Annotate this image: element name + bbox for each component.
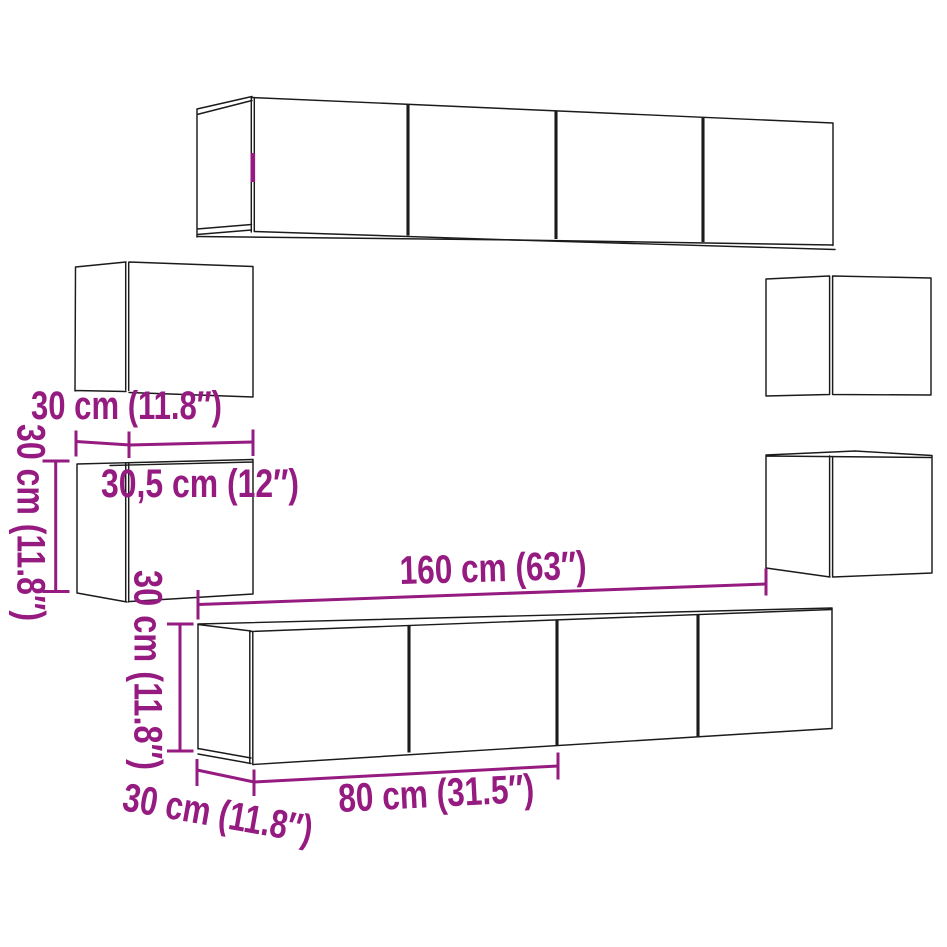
svg-text:30,5 cm (12″): 30,5 cm (12″): [101, 462, 299, 506]
svg-text:30 cm (11.8″): 30 cm (11.8″): [31, 384, 222, 428]
svg-text:30 cm (11.8″): 30 cm (11.8″): [9, 424, 53, 621]
svg-text:30 cm (11.8″): 30 cm (11.8″): [126, 570, 170, 770]
svg-text:160 cm (63″): 160 cm (63″): [399, 544, 587, 593]
